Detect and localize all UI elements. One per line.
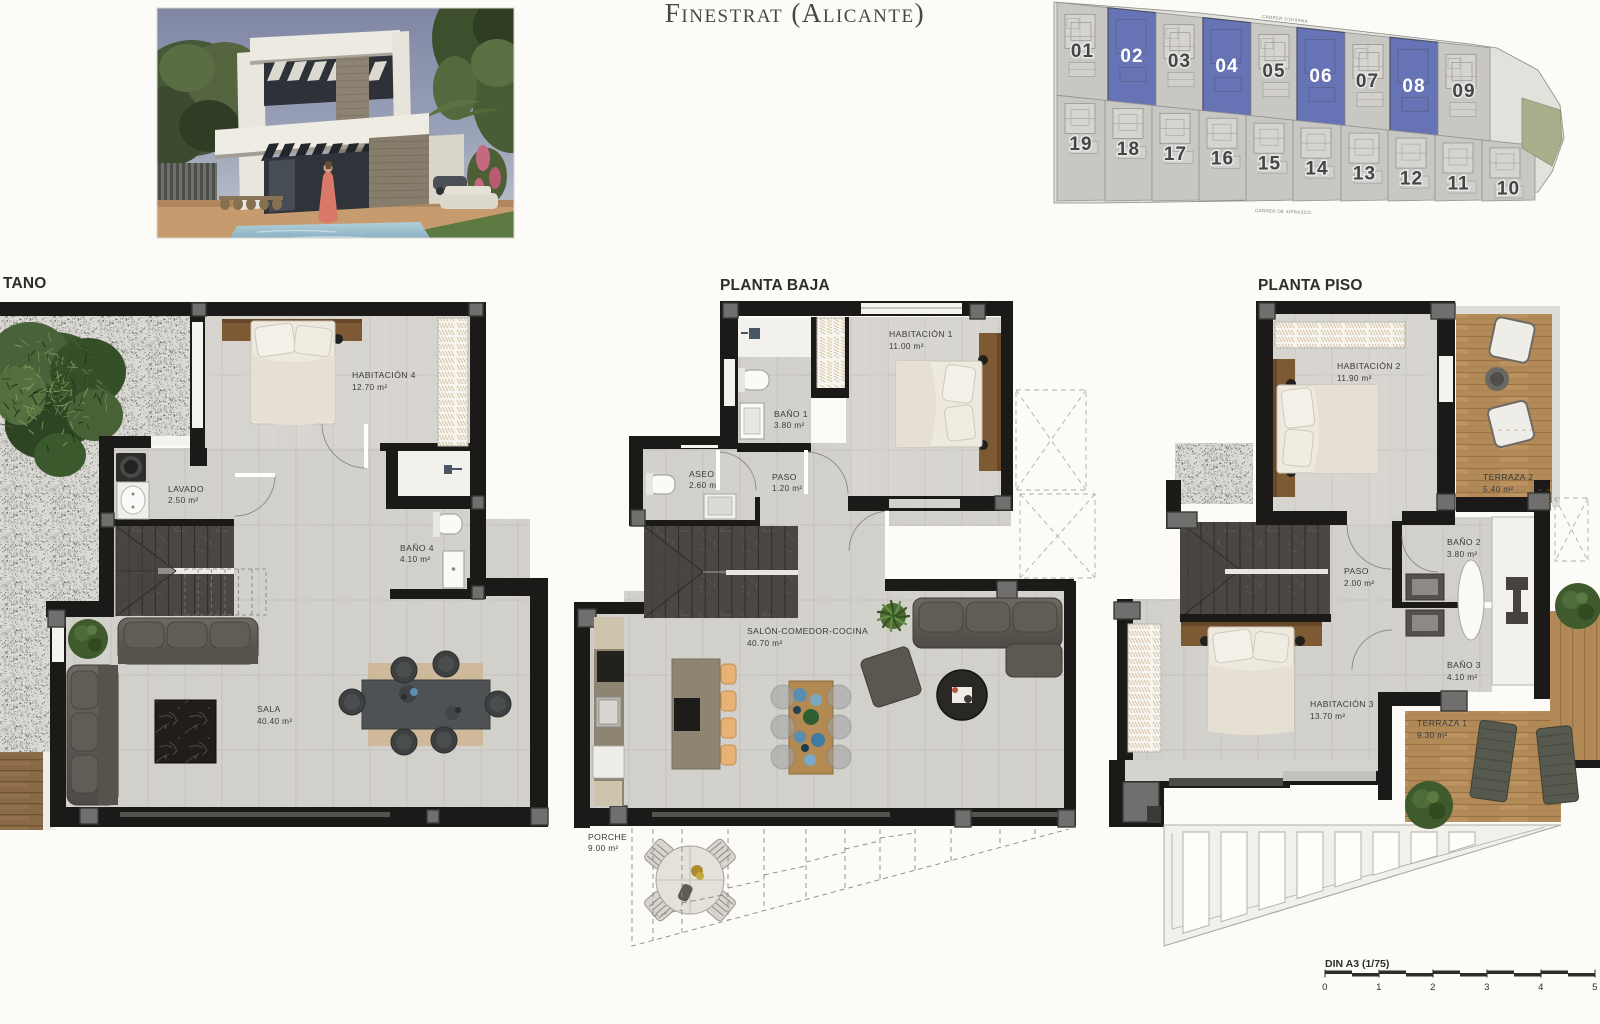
- svg-text:HABITACIÓN 1: HABITACIÓN 1: [889, 329, 953, 339]
- svg-text:CARRER DE XIFRASCO: CARRER DE XIFRASCO: [1255, 208, 1311, 215]
- svg-text:TERRAZA 1: TERRAZA 1: [1417, 718, 1467, 728]
- svg-text:03: 03: [1168, 51, 1191, 72]
- svg-text:07: 07: [1356, 71, 1379, 92]
- svg-text:02: 02: [1120, 46, 1143, 67]
- svg-text:2.60 m²: 2.60 m²: [689, 481, 720, 490]
- svg-text:TERRAZA 2: TERRAZA 2: [1483, 472, 1533, 482]
- svg-text:BAÑO 3: BAÑO 3: [1447, 660, 1481, 670]
- svg-text:14: 14: [1305, 159, 1328, 180]
- svg-text:18: 18: [1117, 139, 1140, 160]
- svg-text:4.10 m²: 4.10 m²: [1447, 673, 1478, 682]
- svg-text:13.70 m²: 13.70 m²: [1310, 712, 1346, 721]
- svg-text:3.80 m²: 3.80 m²: [1447, 550, 1478, 559]
- svg-text:9.00 m²: 9.00 m²: [588, 844, 619, 853]
- svg-text:PLANTA PISO: PLANTA PISO: [1258, 277, 1363, 294]
- svg-text:19: 19: [1069, 134, 1092, 155]
- svg-text:ASEO: ASEO: [689, 469, 714, 479]
- svg-text:10: 10: [1497, 179, 1520, 200]
- svg-text:2: 2: [1430, 982, 1436, 993]
- svg-text:09: 09: [1452, 81, 1475, 102]
- svg-text:PLANTA BAJA: PLANTA BAJA: [720, 277, 830, 294]
- svg-text:1: 1: [1376, 982, 1382, 993]
- svg-text:5: 5: [1592, 982, 1598, 993]
- svg-text:SALÓN-COMEDOR-COCINA: SALÓN-COMEDOR-COCINA: [747, 626, 868, 636]
- svg-text:2.00 m²: 2.00 m²: [1344, 579, 1375, 588]
- svg-text:PASO: PASO: [1344, 566, 1369, 576]
- svg-text:9.30 m²: 9.30 m²: [1417, 731, 1448, 740]
- svg-text:DIN A3 (1/75): DIN A3 (1/75): [1325, 958, 1389, 970]
- svg-text:LAVADO: LAVADO: [168, 484, 204, 494]
- svg-text:1.20 m²: 1.20 m²: [772, 484, 803, 493]
- svg-text:11.90 m²: 11.90 m²: [1337, 374, 1372, 383]
- svg-text:3.80 m²: 3.80 m²: [774, 421, 805, 430]
- svg-text:05: 05: [1262, 61, 1285, 82]
- svg-text:TANO: TANO: [3, 275, 47, 292]
- svg-text:HABITACIÓN 2: HABITACIÓN 2: [1337, 361, 1401, 371]
- svg-text:Finestrat (Alicante): Finestrat (Alicante): [665, 0, 925, 28]
- svg-text:11.00 m²: 11.00 m²: [889, 342, 924, 351]
- svg-text:40.70 m²: 40.70 m²: [747, 639, 783, 648]
- svg-text:06: 06: [1309, 66, 1332, 87]
- svg-text:PASO: PASO: [772, 472, 797, 482]
- svg-text:4.10 m²: 4.10 m²: [400, 555, 431, 564]
- svg-text:BAÑO 4: BAÑO 4: [400, 543, 434, 553]
- svg-text:40.40 m²: 40.40 m²: [257, 717, 293, 726]
- svg-text:12.70 m²: 12.70 m²: [352, 383, 388, 392]
- svg-text:0: 0: [1322, 982, 1328, 993]
- svg-text:HABITACIÓN 4: HABITACIÓN 4: [352, 370, 416, 380]
- svg-text:17: 17: [1164, 144, 1187, 165]
- svg-text:BAÑO 1: BAÑO 1: [774, 409, 808, 419]
- svg-text:4: 4: [1538, 982, 1544, 993]
- svg-text:2.50 m²: 2.50 m²: [168, 496, 199, 505]
- svg-text:15: 15: [1258, 154, 1281, 175]
- svg-text:16: 16: [1211, 149, 1234, 170]
- svg-text:3: 3: [1484, 982, 1490, 993]
- svg-text:01: 01: [1071, 41, 1094, 62]
- svg-text:04: 04: [1215, 56, 1238, 77]
- svg-text:13: 13: [1353, 164, 1376, 185]
- svg-text:BAÑO 2: BAÑO 2: [1447, 537, 1481, 547]
- svg-text:PORCHE: PORCHE: [588, 832, 627, 842]
- svg-text:08: 08: [1402, 76, 1425, 97]
- svg-text:HABITACIÓN 3: HABITACIÓN 3: [1310, 699, 1374, 709]
- svg-text:5.40 m²: 5.40 m²: [1483, 485, 1514, 494]
- svg-text:11: 11: [1447, 173, 1469, 194]
- svg-text:SALA: SALA: [257, 704, 281, 714]
- svg-text:12: 12: [1400, 169, 1423, 190]
